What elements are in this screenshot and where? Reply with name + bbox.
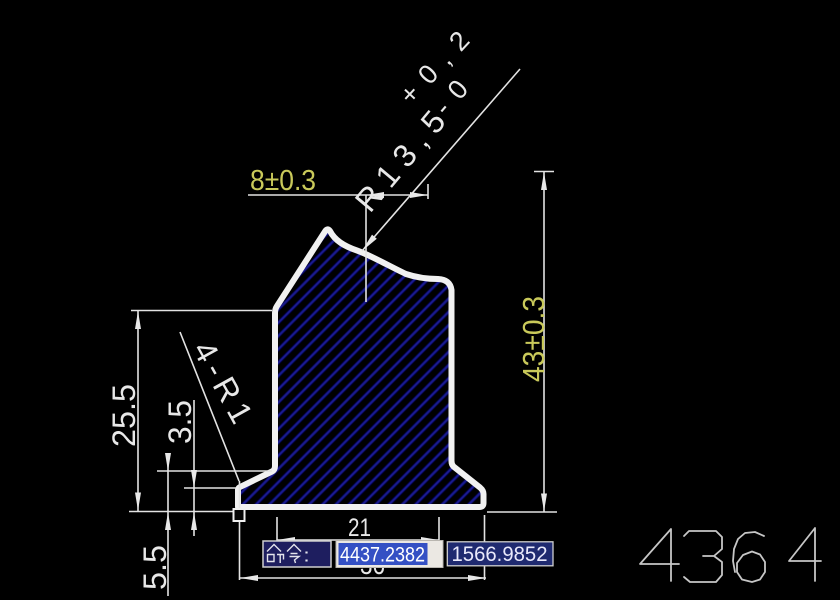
- svg-text:8±0.3: 8±0.3: [250, 165, 316, 197]
- svg-text:25.5: 25.5: [106, 384, 142, 447]
- svg-text:4437.2382: 4437.2382: [340, 544, 425, 567]
- svg-text:43±0.3: 43±0.3: [516, 296, 551, 382]
- svg-text:3.5: 3.5: [162, 400, 198, 444]
- svg-text:1566.9852: 1566.9852: [452, 543, 548, 566]
- svg-text:21: 21: [348, 514, 371, 542]
- svg-text:5.5: 5.5: [137, 545, 173, 590]
